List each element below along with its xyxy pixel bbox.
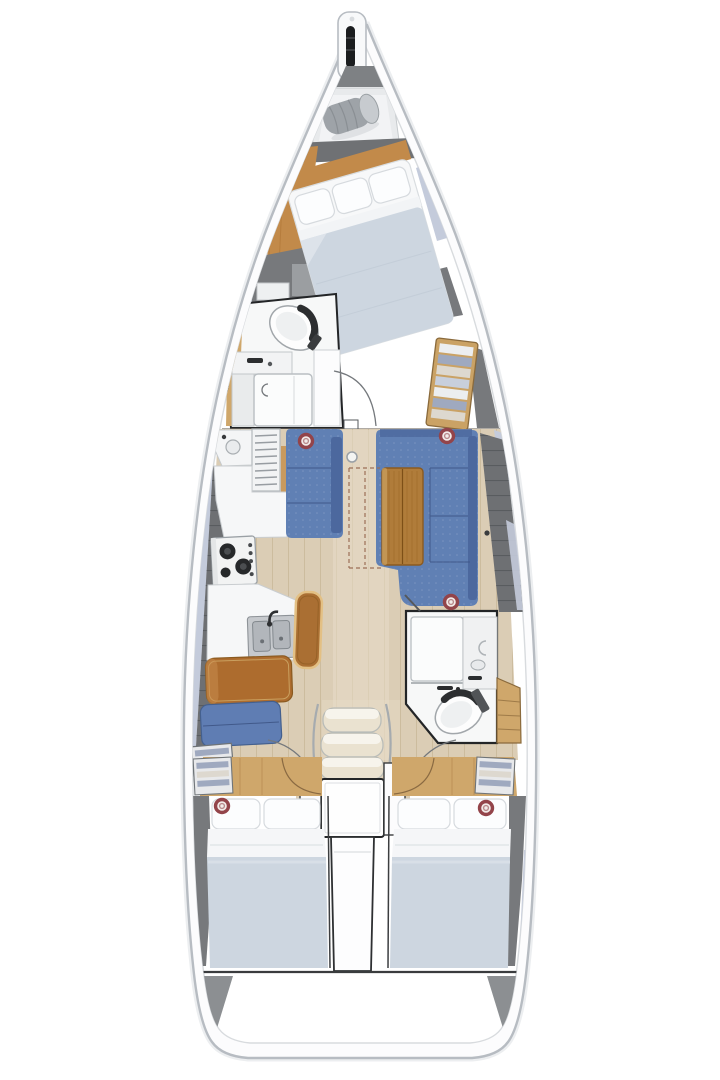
pillow bbox=[264, 799, 320, 829]
aft-cabin-port bbox=[193, 757, 330, 968]
cabin-shelves bbox=[475, 757, 515, 795]
duvet bbox=[390, 857, 510, 968]
cabin-shelves bbox=[193, 757, 233, 795]
head-seat bbox=[314, 350, 340, 426]
mast-post bbox=[347, 452, 357, 462]
salon-table bbox=[382, 468, 423, 565]
fridge bbox=[252, 429, 280, 491]
nav-bench bbox=[205, 656, 293, 705]
interior bbox=[189, 66, 533, 1055]
anchor-roller-icon bbox=[346, 26, 355, 68]
vanity-cabinet bbox=[232, 374, 254, 426]
stool bbox=[294, 592, 323, 669]
pillow bbox=[398, 799, 450, 829]
aft-cabin-starboard bbox=[388, 757, 533, 968]
vanity-counter bbox=[232, 352, 292, 374]
shower-stall bbox=[411, 617, 463, 681]
shower-stall bbox=[254, 374, 312, 426]
head-locker bbox=[497, 678, 521, 743]
deck-fitting bbox=[484, 530, 489, 535]
floor-plan-page bbox=[0, 0, 720, 1080]
hatch-icon bbox=[300, 435, 313, 448]
round-sink-icon bbox=[226, 440, 240, 454]
faucet-icon bbox=[468, 676, 482, 680]
faucet-icon bbox=[247, 358, 263, 363]
bow-shackle bbox=[350, 17, 355, 22]
hatch-icon bbox=[216, 800, 229, 813]
engine-compartment bbox=[331, 837, 374, 971]
hatch-icon bbox=[441, 430, 454, 443]
sink-icon bbox=[471, 660, 485, 670]
engine-box bbox=[321, 779, 384, 837]
duvet bbox=[207, 857, 328, 968]
forward-cabin-door bbox=[344, 420, 358, 429]
stove bbox=[211, 536, 257, 586]
double-sink bbox=[247, 611, 297, 659]
hatch-icon bbox=[480, 802, 493, 815]
boat-floor-plan bbox=[0, 0, 720, 1080]
port-settee bbox=[286, 429, 343, 538]
companionway-steps[interactable] bbox=[320, 708, 384, 779]
hatch-icon bbox=[445, 596, 458, 609]
